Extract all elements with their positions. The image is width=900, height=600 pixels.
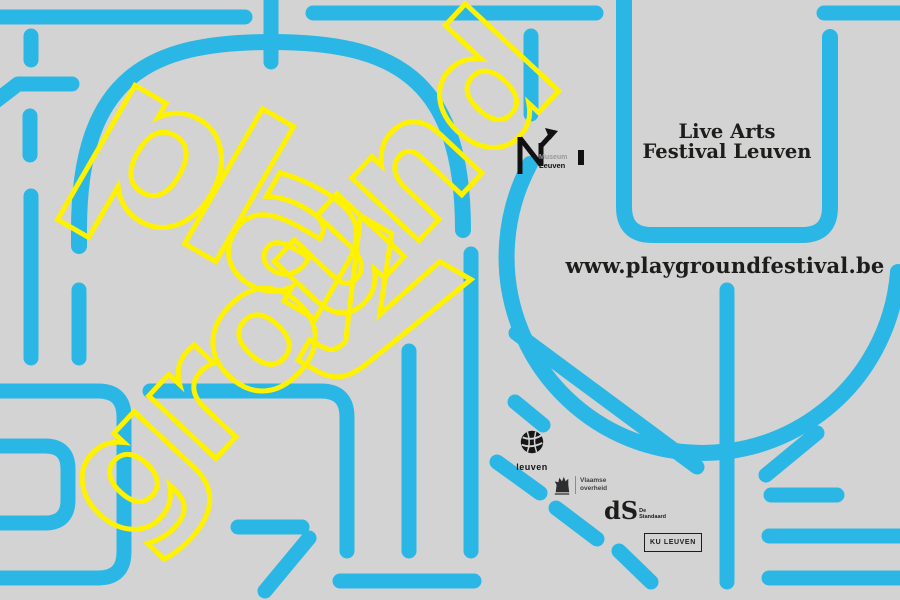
m-logo-text-museum: Museum (539, 154, 567, 161)
vlaamse-overheid-divider (575, 476, 576, 494)
leuven-globe-icon (518, 428, 546, 456)
partner-vo-line2: overheid (580, 485, 607, 493)
m-museum-leuven-logo: Museum Leuven (514, 126, 588, 176)
festival-title: Live Arts Festival Leuven (627, 122, 827, 161)
vlaamse-overheid-lion-icon (553, 474, 571, 496)
poster: play ground Museum Leuven Live Arts Fest… (0, 0, 900, 600)
partner-ku-leuven-logo: KU LEUVEN (644, 533, 702, 552)
partner-vo-line1: Vlaamse (580, 477, 607, 485)
de-standaard-ds-mark: dS (604, 500, 638, 522)
website-url[interactable]: www.playgroundfestival.be (560, 253, 890, 278)
partner-vlaamse-overheid-logo: Vlaamse overheid (553, 474, 607, 496)
partner-de-standaard-logo: dS De Standaard (604, 500, 666, 522)
m-logo-bar-icon (578, 150, 584, 165)
festival-title-line2: Festival Leuven (627, 142, 827, 162)
partner-leuven-label: leuven (504, 462, 560, 472)
m-logo-text-leuven: Leuven (539, 161, 566, 170)
partner-ds-label2: Standaard (639, 514, 666, 520)
partner-leuven-logo: leuven (504, 428, 560, 472)
festival-title-line1: Live Arts (627, 122, 827, 142)
